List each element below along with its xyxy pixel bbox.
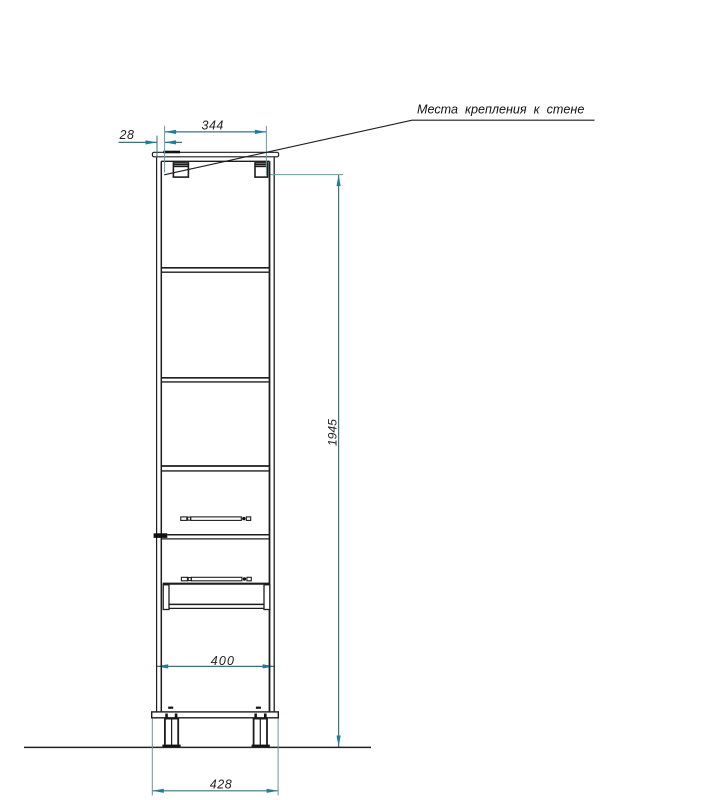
svg-text:428: 428 — [210, 778, 232, 792]
svg-text:Места крепления к стене: Места крепления к стене — [417, 102, 584, 116]
svg-text:400: 400 — [211, 654, 235, 668]
svg-text:1945: 1945 — [326, 419, 340, 446]
svg-text:28: 28 — [119, 128, 135, 142]
svg-text:344: 344 — [202, 119, 224, 133]
